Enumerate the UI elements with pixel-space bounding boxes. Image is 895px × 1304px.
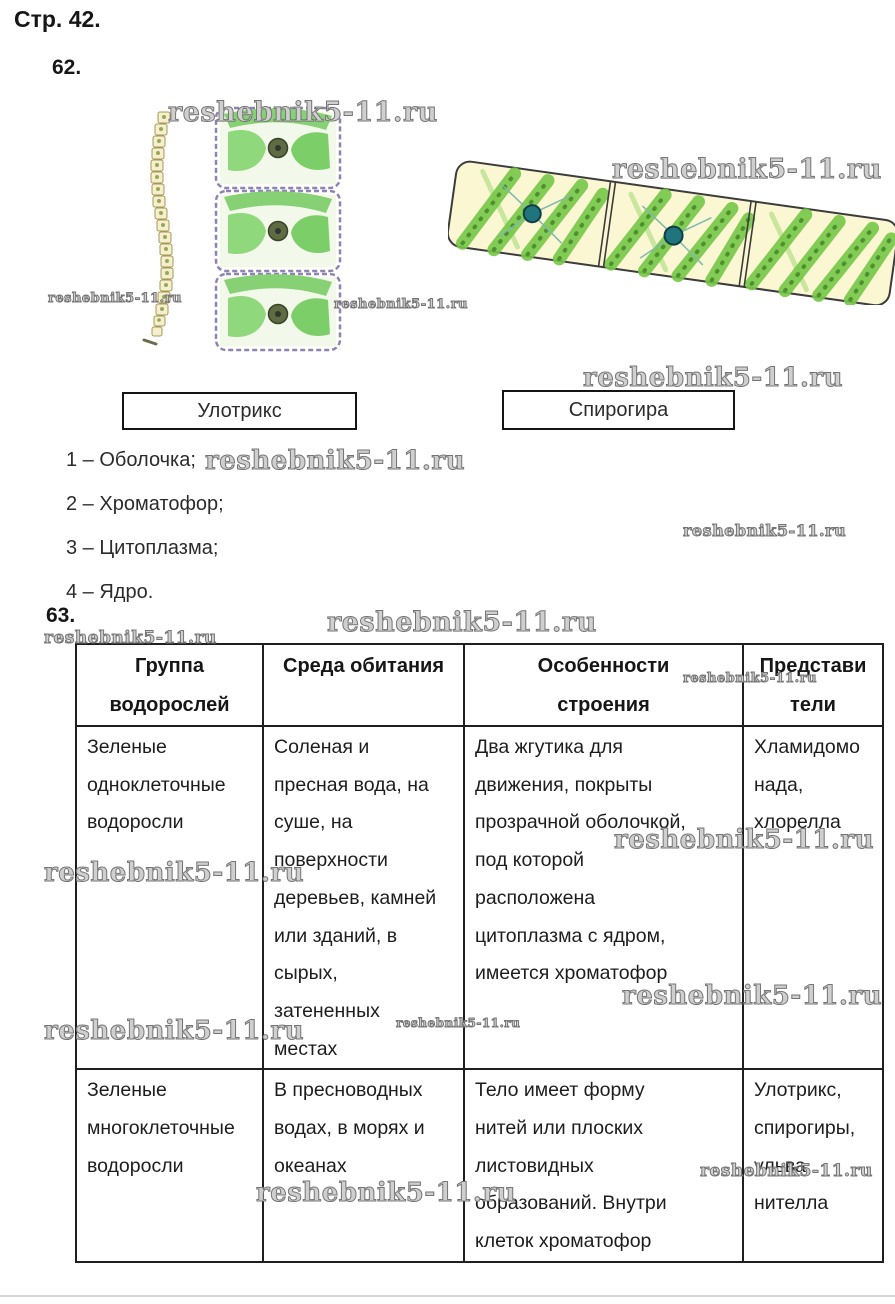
watermark: reshebnik5-11.ru xyxy=(583,363,843,393)
watermark: reshebnik5-11.ru xyxy=(205,446,465,476)
watermark: reshebnik5-11.ru xyxy=(612,154,882,185)
legend-item-2: 2 – Хроматофор; xyxy=(66,493,224,516)
ulothrix-caption: Улотрикс xyxy=(197,400,281,423)
column-header-habitat: Среда обитания xyxy=(263,644,464,726)
page-root: Стр. 42. 62. 63. xyxy=(0,0,895,1304)
large-cells xyxy=(216,108,340,350)
watermark: reshebnik5-11.ru xyxy=(334,297,468,312)
watermark: reshebnik5-11.ru xyxy=(48,291,182,306)
watermark: reshebnik5-11.ru xyxy=(614,825,874,855)
filament-tail xyxy=(144,340,156,344)
spirogyra-caption: Спирогира xyxy=(569,399,668,422)
ulothrix-svg xyxy=(128,106,358,352)
watermark: reshebnik5-11.ru xyxy=(700,1161,873,1181)
task-number-62: 62. xyxy=(52,56,81,80)
legend-item-3: 3 – Цитоплазма; xyxy=(66,537,218,560)
task-number-63: 63. xyxy=(46,604,75,628)
ulothrix-illustration xyxy=(128,106,358,357)
watermark: reshebnik5-11.ru xyxy=(622,981,882,1011)
column-header-group: Группа водорослей xyxy=(76,644,263,726)
watermark: reshebnik5-11.ru xyxy=(396,1016,520,1030)
cell-representatives-unicellular: Хламидомо нада, хлорелла xyxy=(743,726,883,1069)
watermark: reshebnik5-11.ru xyxy=(683,671,817,686)
cell-group-multicellular: Зеленые многоклеточные водоросли xyxy=(76,1069,263,1262)
spirogyra-caption-box: Спирогира xyxy=(502,390,735,430)
watermark: reshebnik5-11.ru xyxy=(256,1178,516,1208)
page-bottom-divider xyxy=(0,1295,895,1297)
page-title: Стр. 42. xyxy=(14,6,101,33)
ulothrix-caption-box: Улотрикс xyxy=(122,392,357,430)
watermark: reshebnik5-11.ru xyxy=(44,628,217,648)
watermark: reshebnik5-11.ru xyxy=(44,858,304,888)
watermark: reshebnik5-11.ru xyxy=(683,521,846,540)
watermark: reshebnik5-11.ru xyxy=(44,1016,304,1046)
legend-item-4: 4 – Ядро. xyxy=(66,581,153,604)
watermark: reshebnik5-11.ru xyxy=(168,97,438,128)
legend-item-1: 1 – Оболочка; xyxy=(66,449,196,472)
cell-habitat-multicellular: В пресноводных водах, в морях и океанах xyxy=(263,1069,464,1262)
watermark: reshebnik5-11.ru xyxy=(327,607,597,638)
